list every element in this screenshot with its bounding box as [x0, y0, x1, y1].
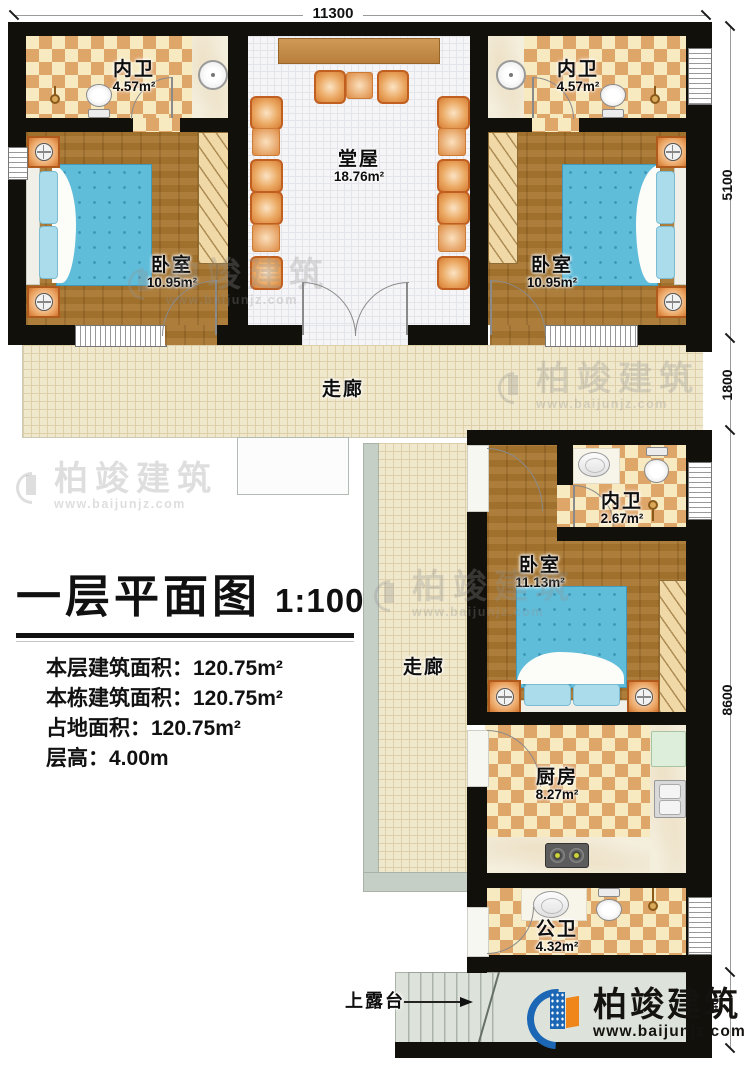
nightstand [656, 286, 689, 318]
wardrobe [488, 132, 518, 264]
stove-icon [545, 843, 589, 868]
lamp-icon [635, 688, 653, 706]
door-opening [133, 118, 180, 132]
room-label-kitchen: 厨房8.27m² [517, 768, 597, 802]
tea-table [252, 128, 280, 156]
nightstand [656, 136, 689, 168]
pillow [39, 171, 58, 224]
nightstand [488, 680, 521, 714]
plan-info: 本层建筑面积：120.75m² 本栋建筑面积：120.75m² 占地面积：120… [46, 654, 364, 774]
toilet-icon [596, 888, 622, 921]
toilet-icon [644, 447, 669, 483]
kitchen-sink-icon [654, 780, 686, 818]
window [8, 147, 28, 180]
wardrobe [659, 580, 688, 714]
plan-title: 一层平面图 [16, 571, 261, 622]
pillow [39, 226, 58, 279]
chair [314, 70, 346, 104]
towel-ring-icon [50, 94, 60, 104]
chair [250, 96, 283, 130]
window [75, 325, 167, 347]
terrace-edge-left [363, 443, 379, 892]
wall [228, 22, 248, 345]
brand-url: www.baijunjz.com [593, 1022, 746, 1041]
room-label-bath-top-right: 内卫4.57m² [538, 60, 618, 94]
chair [437, 191, 470, 225]
wall [217, 325, 228, 345]
window [688, 48, 712, 105]
wall [467, 888, 487, 907]
dimension-right-corridor: 1800 [719, 355, 735, 415]
towel-stem [652, 888, 654, 902]
window [545, 325, 638, 347]
room-label-bedroom-top-left: 卧室10.95m² [132, 256, 212, 290]
nightstand [27, 286, 60, 318]
door-opening [557, 485, 573, 527]
chair [377, 70, 409, 104]
wall [8, 22, 712, 36]
lamp-icon [664, 293, 682, 311]
altar-table [278, 38, 440, 64]
door-opening [467, 907, 489, 957]
nightstand [27, 136, 60, 168]
room-label-bath-public: 公卫4.32m² [517, 920, 597, 954]
wall [467, 430, 712, 445]
sink-icon [198, 60, 228, 90]
towel-stem [654, 86, 656, 95]
sink-icon [496, 60, 526, 90]
wall [467, 955, 487, 973]
door-leaf [302, 282, 304, 335]
wall [26, 118, 133, 132]
door-opening [467, 445, 489, 512]
room-label-bedroom-lower: 卧室11.13m² [500, 556, 580, 590]
door-leaf [215, 280, 217, 335]
pillow [656, 171, 675, 224]
chair [437, 159, 470, 193]
wall [467, 510, 487, 712]
tea-table [346, 72, 373, 99]
wall [557, 527, 688, 541]
room-label-bath-top-left: 内卫4.57m² [94, 60, 174, 94]
title-block: 一层平面图1:100 本层建筑面积：120.75m² 本栋建筑面积：120.75… [16, 560, 364, 774]
plan-scale: 1:100 [275, 582, 364, 619]
room-label-terrace: 上露台 [344, 992, 406, 1011]
door-leaf [406, 282, 408, 335]
terrace-edge-bottom [363, 872, 472, 892]
fridge-icon [651, 731, 686, 767]
plan-title-row: 一层平面图1:100 [16, 560, 364, 625]
brand-logo: 柏竣建筑 www.baijunjz.com [525, 983, 746, 1047]
chair [437, 96, 470, 130]
towel-stem [54, 86, 56, 95]
wall [557, 430, 573, 485]
dimension-right-upper: 5100 [719, 155, 735, 215]
watermark: 柏竣建筑www.baijunjz.com [16, 462, 218, 512]
wall [470, 22, 488, 345]
info-line-storey-height: 层高：4.00m [46, 744, 364, 774]
door-opening [532, 118, 579, 132]
info-line-floor-area: 本层建筑面积：120.75m² [46, 654, 364, 684]
floor-plan: 内卫4.57m² 内卫4.57m² 堂屋18.76m² 卧室10.95m² 卧室… [0, 0, 750, 1066]
wall [467, 712, 712, 725]
terrace-arrow-icon [460, 997, 473, 1007]
tea-table [438, 128, 466, 156]
wardrobe [198, 132, 230, 264]
door-opening [467, 730, 489, 787]
room-label-corridor-vertical: 走廊 [396, 658, 452, 678]
sink-icon [533, 891, 569, 918]
title-underline-thin [16, 641, 354, 642]
watermark-logo-icon [16, 470, 46, 504]
dimension-right-lower: 8600 [719, 670, 735, 730]
chair [437, 256, 470, 290]
info-line-building-area: 本栋建筑面积：120.75m² [46, 684, 364, 714]
wall [488, 118, 532, 132]
towel-ring-icon [648, 901, 658, 911]
door-leaf [490, 280, 492, 335]
chair [250, 191, 283, 225]
dimension-top: 11300 [303, 5, 363, 22]
wall [636, 325, 686, 345]
room-label-bedroom-top-right: 卧室10.95m² [512, 256, 592, 290]
pillow [656, 226, 675, 279]
tea-table [438, 224, 466, 252]
wall [180, 118, 228, 132]
wall [487, 955, 712, 972]
wall [8, 325, 75, 345]
bed-headboard [26, 165, 40, 285]
terrace-stairs [408, 972, 500, 1043]
pillow [524, 684, 571, 706]
lamp-icon [664, 143, 682, 161]
nightstand [627, 680, 660, 714]
wall [467, 873, 712, 888]
wall [467, 785, 487, 873]
title-underline [16, 633, 354, 638]
tea-table [252, 224, 280, 252]
wall [8, 22, 26, 341]
lamp-icon [496, 688, 514, 706]
wall [228, 325, 302, 345]
brand-logo-icon [525, 983, 589, 1047]
door-leaf [532, 77, 534, 118]
door-leaf [573, 485, 575, 527]
info-line-footprint: 占地面积：120.75m² [46, 714, 364, 744]
chair [250, 256, 283, 290]
sink-icon [578, 452, 610, 477]
room-label-hall: 堂屋18.76m² [315, 150, 403, 184]
chair [250, 159, 283, 193]
pillow [573, 684, 620, 706]
wall [408, 325, 470, 345]
wall [579, 118, 686, 132]
window [688, 897, 712, 955]
brand-name: 柏竣建筑 [593, 988, 746, 1022]
lamp-icon [35, 143, 53, 161]
room-label-corridor-horizontal: 走廊 [315, 380, 371, 400]
terrace-arrow-line [404, 1001, 462, 1003]
lamp-icon [35, 293, 53, 311]
window [688, 462, 712, 520]
entry-steps [237, 437, 349, 495]
room-label-bath-middle: 内卫2.67m² [582, 492, 662, 526]
towel-ring-icon [650, 94, 660, 104]
